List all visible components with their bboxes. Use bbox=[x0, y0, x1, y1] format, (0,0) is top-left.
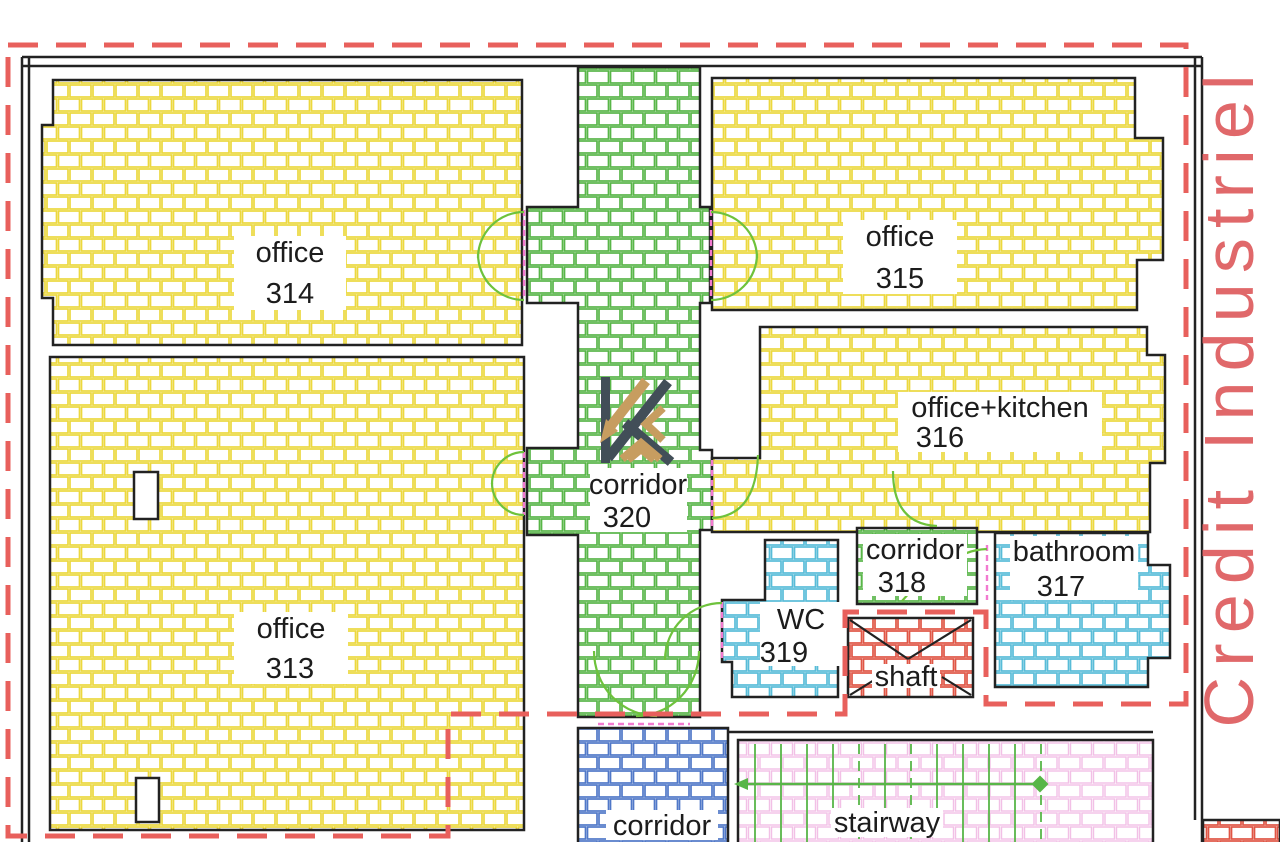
number-bathroom-317: 317 bbox=[1037, 571, 1085, 603]
label-corridor-bottom: corridor bbox=[613, 810, 712, 842]
floorplan-drawing: office 314 office 315 office 313 office+… bbox=[0, 0, 1280, 842]
label-office-313: office bbox=[257, 613, 326, 645]
room-stairway bbox=[738, 740, 1153, 842]
room-corridor-320 bbox=[527, 67, 712, 717]
label-office-315: office bbox=[866, 221, 935, 253]
number-office-315: 315 bbox=[876, 263, 924, 295]
label-stairway: stairway bbox=[834, 807, 941, 839]
number-office-kitchen-316: 316 bbox=[916, 422, 964, 454]
label-corridor-318: corridor bbox=[866, 534, 965, 566]
wall-pier bbox=[134, 472, 158, 519]
room-fragment-bottom-right bbox=[1203, 820, 1280, 842]
label-corridor-320: corridor bbox=[589, 469, 688, 501]
label-office-314: office bbox=[256, 237, 325, 269]
label-wc-319: WC bbox=[777, 604, 825, 636]
label-office-kitchen-316: office+kitchen bbox=[911, 392, 1089, 424]
number-office-314: 314 bbox=[266, 278, 314, 310]
wall-pier bbox=[136, 778, 159, 822]
room-office-313 bbox=[50, 357, 524, 830]
number-wc-319: 319 bbox=[760, 637, 808, 669]
number-corridor-320: 320 bbox=[603, 502, 651, 534]
floorplan-page: office 314 office 315 office 313 office+… bbox=[0, 0, 1280, 842]
number-corridor-318: 318 bbox=[878, 567, 926, 599]
label-shaft: shaft bbox=[875, 661, 938, 693]
number-office-313: 313 bbox=[266, 653, 314, 685]
label-bathroom-317: bathroom bbox=[1013, 536, 1136, 568]
